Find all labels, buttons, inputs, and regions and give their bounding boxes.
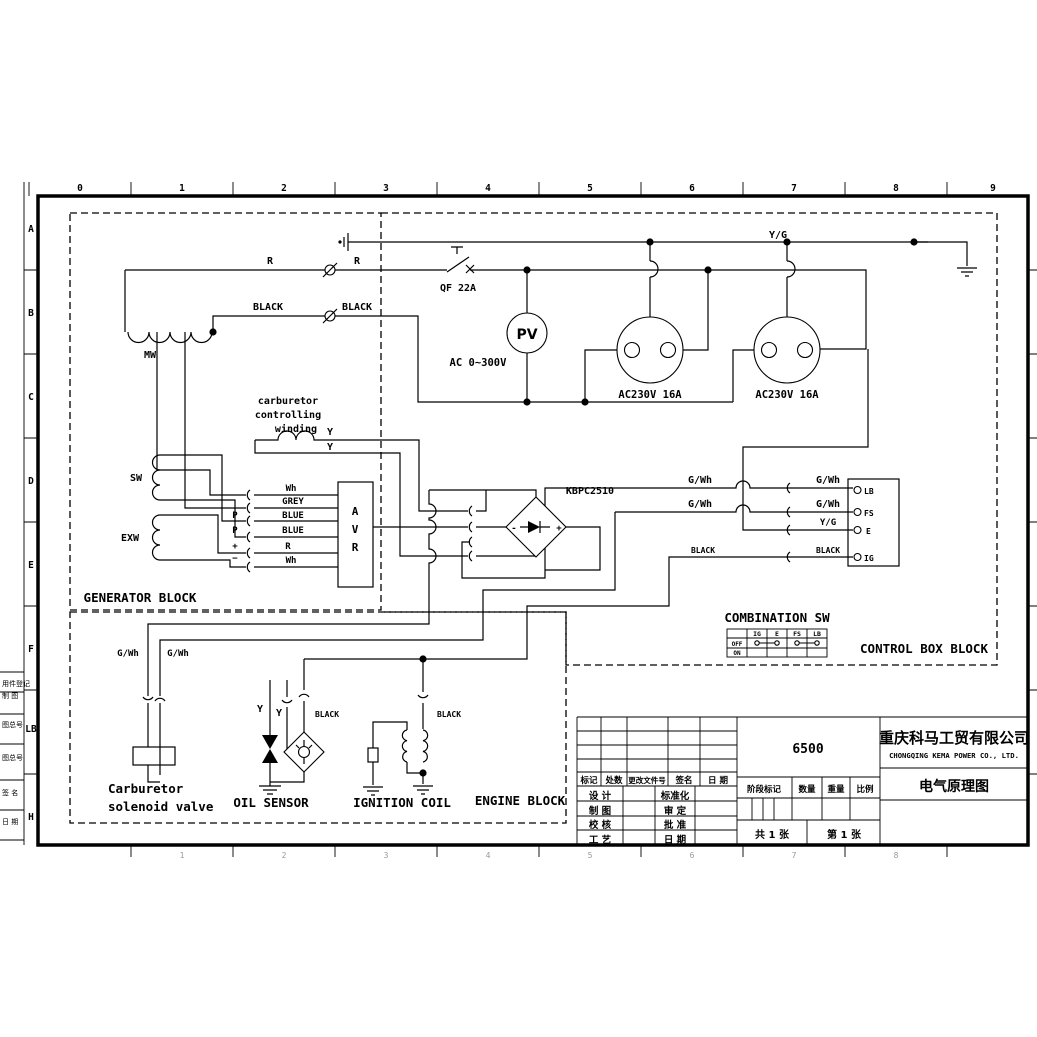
left-ruler <box>24 182 38 845</box>
label-solenoid-2: solenoid valve <box>108 799 214 814</box>
bottom-ruler-number: 8 <box>894 851 899 860</box>
left-ruler-letter: F <box>28 644 34 655</box>
label-black6: BLACK <box>437 710 461 719</box>
left-ruler-letter: B <box>28 308 34 319</box>
side-note: 日 期 <box>2 818 18 826</box>
left-ruler-letter: LB <box>25 724 37 735</box>
label-y3: Y <box>257 704 263 715</box>
label-combination-sw: COMBINATION SW <box>724 610 830 625</box>
tb-riqi1: 日 期 <box>708 775 728 786</box>
bottom-ruler-ticks <box>131 845 947 857</box>
label-socket2: AC230V 16A <box>755 389 819 401</box>
label-blue1: BLUE <box>282 511 304 521</box>
label-rect-minus: - <box>511 524 516 534</box>
label-carb-2: controlling <box>255 409 321 421</box>
company-name-en: CHONGQING KEMA POWER CO., LTD. <box>889 751 1019 760</box>
label-y1: Y <box>327 427 333 438</box>
label-blue2: BLUE <box>282 526 304 536</box>
top-ruler-number: 5 <box>587 183 593 194</box>
tb-jieduan: 阶段标记 <box>747 784 782 795</box>
top-ruler-number: 3 <box>383 183 389 194</box>
label-mw: MW <box>144 350 157 361</box>
oil-lamp-icon <box>284 732 324 772</box>
label-socket1: AC230V 16A <box>618 389 682 401</box>
top-ruler-number: 1 <box>179 183 185 194</box>
carburetor-solenoid-valve <box>133 747 175 765</box>
label-black1: BLACK <box>253 302 283 313</box>
label-yg: Y/G <box>769 230 787 241</box>
bottom-ruler-number: 2 <box>282 851 287 860</box>
side-note: 签 名 <box>2 788 18 797</box>
label-black3: BLACK <box>691 546 715 555</box>
label-grey: GREY <box>282 497 304 507</box>
table-h-lb: LB <box>813 630 821 638</box>
label-carb-1: carburetor <box>258 396 318 407</box>
tb-shuliang: 数量 <box>798 784 816 795</box>
label-yg2: Y/G <box>820 518 836 528</box>
label-term-e: E <box>866 527 871 536</box>
ground-icon <box>363 787 383 795</box>
label-minus: − <box>232 554 238 564</box>
side-note: 图总号 <box>2 753 23 762</box>
tb-bili: 比例 <box>856 784 874 795</box>
label-y4: Y <box>276 708 282 719</box>
label-qf: QF 22A <box>440 283 476 294</box>
label-ac-range: AC 0~300V <box>450 357 508 369</box>
left-ruler-letter: H <box>28 812 34 823</box>
tb-jiaohe: 校 核 <box>589 819 612 831</box>
ground-icon <box>259 786 281 794</box>
label-avr-v: V <box>352 523 359 536</box>
label-gwh1: G/Wh <box>688 475 712 486</box>
label-rect-plus: + <box>556 524 562 534</box>
label-sw: SW <box>130 473 143 484</box>
label-gwh2: G/Wh <box>816 475 840 486</box>
label-oil-sensor: OIL SENSOR <box>233 795 309 810</box>
tb-qianming: 签名 <box>674 775 692 786</box>
tb-biaoji: 标记 <box>579 775 598 786</box>
label-term-fs: FS <box>864 509 874 518</box>
sheet-total: 共 1 张 <box>755 828 790 841</box>
tb-zhongliang: 重量 <box>827 784 845 795</box>
label-ignition-coil: IGNITION COIL <box>353 795 451 810</box>
label-wh1: Wh <box>286 484 297 494</box>
label-avr-a: A <box>352 505 359 518</box>
top-ruler-number: 7 <box>791 183 797 194</box>
label-engine-block: ENGINE BLOCK <box>475 793 566 808</box>
left-ruler-letter: D <box>28 476 34 487</box>
label-gwh5: G/Wh <box>117 649 139 659</box>
table-h-ig: IG <box>753 630 761 638</box>
spark-plug-icon <box>368 748 378 762</box>
control-box-block-outline <box>381 213 997 665</box>
tb-genggai: 更改文件号 <box>628 775 666 785</box>
plug-connector-icons <box>143 483 790 703</box>
label-gwh3: G/Wh <box>688 499 712 510</box>
tb-shending: 审 定 <box>664 805 687 817</box>
breaker-qf22a <box>437 247 474 273</box>
socket-outlet-2 <box>754 317 820 383</box>
oil-sensor-symbol <box>262 735 278 763</box>
left-ruler-letter: A <box>28 224 34 235</box>
top-ruler-number: 0 <box>77 183 83 194</box>
ground-icon <box>413 786 433 794</box>
label-r2: R <box>354 256 361 267</box>
table-h-e: E <box>775 630 779 638</box>
side-note: 用件登记 <box>2 679 30 688</box>
label-r3: R <box>285 542 291 552</box>
bottom-ruler-number: 1 <box>180 851 185 860</box>
ground-icon <box>957 268 977 276</box>
bottom-ruler-number: 5 <box>588 851 593 860</box>
tb-riqi2: 日 期 <box>664 834 686 846</box>
schematic-page: 重庆科马工贸有限公司 CHONGQING KEMA POWER CO., LTD… <box>0 0 1037 1037</box>
label-gwh6: G/Wh <box>167 649 189 659</box>
schematic-labels: Y/GRRQF 22ABLACKBLACKMWPVAC 0~300VAC230V… <box>2 183 996 860</box>
socket-outlet-1 <box>617 317 683 383</box>
tb-pizhun: 批 准 <box>664 819 687 831</box>
wiring-diagram-canvas: 重庆科马工贸有限公司 CHONGQING KEMA POWER CO., LTD… <box>0 0 1037 1037</box>
bottom-ruler-number: 7 <box>792 851 797 860</box>
bottom-ruler-number: 3 <box>384 851 389 860</box>
left-ruler-letter: E <box>28 560 34 571</box>
sheet-number: 第 1 张 <box>827 828 862 841</box>
label-black2: BLACK <box>342 302 372 313</box>
label-plus: + <box>232 542 238 552</box>
label-gwh4: G/Wh <box>816 499 840 510</box>
left-ruler-letter: C <box>28 392 34 403</box>
tb-chushu: 处数 <box>604 775 623 786</box>
top-ruler-number: 6 <box>689 183 695 194</box>
tb-sheji: 设 计 <box>589 790 612 802</box>
label-r1: R <box>267 256 274 267</box>
label-term-lb: LB <box>864 487 874 496</box>
label-pv: PV <box>516 327 537 343</box>
company-name-cn: 重庆科马工贸有限公司 <box>879 729 1029 747</box>
table-h-fs: FS <box>793 630 801 638</box>
top-ruler-number: 8 <box>893 183 899 194</box>
bottom-ruler-number: 4 <box>486 851 491 860</box>
tb-biaozhunhua: 标准化 <box>660 790 690 802</box>
table-r-off: OFF <box>732 641 743 648</box>
label-exw: EXW <box>121 533 140 544</box>
label-p1: P <box>232 511 238 521</box>
label-avr-r: R <box>352 541 359 554</box>
label-kbpc: KBPC2510 <box>566 486 614 497</box>
top-ruler-number: 2 <box>281 183 287 194</box>
label-p2: P <box>232 526 238 536</box>
top-ruler-number: 9 <box>990 183 996 194</box>
side-note: 制 图 <box>2 691 18 700</box>
label-term-ig: IG <box>864 554 874 563</box>
label-control-box-block: CONTROL BOX BLOCK <box>860 641 988 656</box>
label-y2: Y <box>327 442 333 453</box>
label-solenoid-1: Carburetor <box>108 781 184 796</box>
top-ruler-number: 4 <box>485 183 491 194</box>
connector-icon <box>323 263 337 323</box>
title-block: 重庆科马工贸有限公司 CHONGQING KEMA POWER CO., LTD… <box>577 717 1029 846</box>
table-r-on: ON <box>733 650 741 657</box>
tb-zhitu: 制 图 <box>589 805 611 817</box>
model-number: 6500 <box>792 742 823 757</box>
side-note: 图总号 <box>2 720 23 729</box>
drawing-title: 电气原理图 <box>919 778 989 795</box>
label-wh2: Wh <box>286 556 297 566</box>
label-generator-block: GENERATOR BLOCK <box>84 590 197 605</box>
chassis-ground-icon <box>338 233 348 251</box>
bottom-ruler-number: 6 <box>690 851 695 860</box>
label-black5: BLACK <box>315 710 339 719</box>
label-black4: BLACK <box>816 546 840 555</box>
label-carb-3: winding <box>275 423 317 435</box>
tb-gongyi: 工 艺 <box>589 834 612 846</box>
